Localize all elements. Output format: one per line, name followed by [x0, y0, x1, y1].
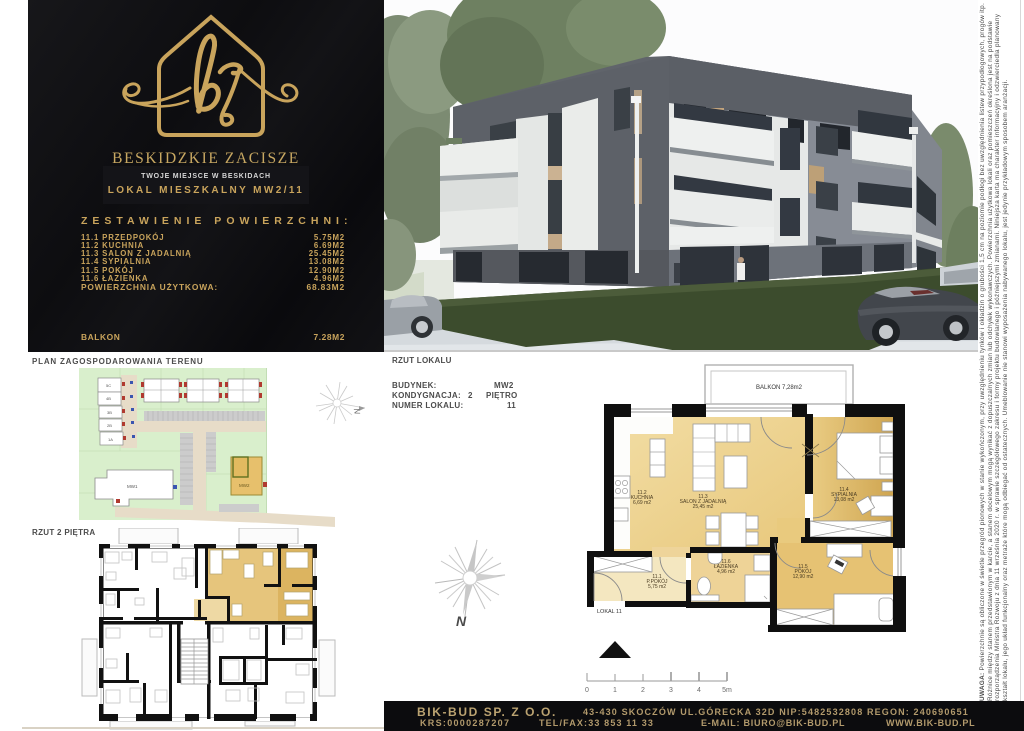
svg-text:13,08 m2: 13,08 m2 — [834, 497, 855, 503]
svg-text:25,45 m2: 25,45 m2 — [693, 504, 714, 510]
svg-text:MW1: MW1 — [127, 484, 138, 489]
svg-text:5m: 5m — [722, 687, 732, 694]
svg-text:5C: 5C — [106, 383, 111, 388]
svg-text:12,90 m2: 12,90 m2 — [793, 574, 814, 580]
svg-text:0: 0 — [585, 687, 589, 694]
svg-text:1: 1 — [613, 687, 617, 694]
svg-text:4B: 4B — [106, 396, 111, 401]
svg-text:LOKAL 11: LOKAL 11 — [597, 609, 622, 615]
svg-text:2: 2 — [641, 687, 645, 694]
svg-text:5,75 m2: 5,75 m2 — [648, 584, 666, 590]
svg-text:4,96 m2: 4,96 m2 — [717, 569, 735, 575]
svg-text:N: N — [456, 613, 467, 629]
svg-text:4: 4 — [697, 687, 701, 694]
svg-text:2B: 2B — [107, 423, 112, 428]
svg-text:3: 3 — [669, 687, 673, 694]
svg-text:3B: 3B — [107, 410, 112, 415]
svg-text:6,69 m2: 6,69 m2 — [633, 500, 651, 506]
svg-text:BALKON 7,28m2: BALKON 7,28m2 — [756, 385, 803, 391]
svg-text:MW2: MW2 — [239, 483, 250, 488]
svg-text:1A: 1A — [108, 437, 113, 442]
svg-text:N: N — [352, 408, 362, 415]
